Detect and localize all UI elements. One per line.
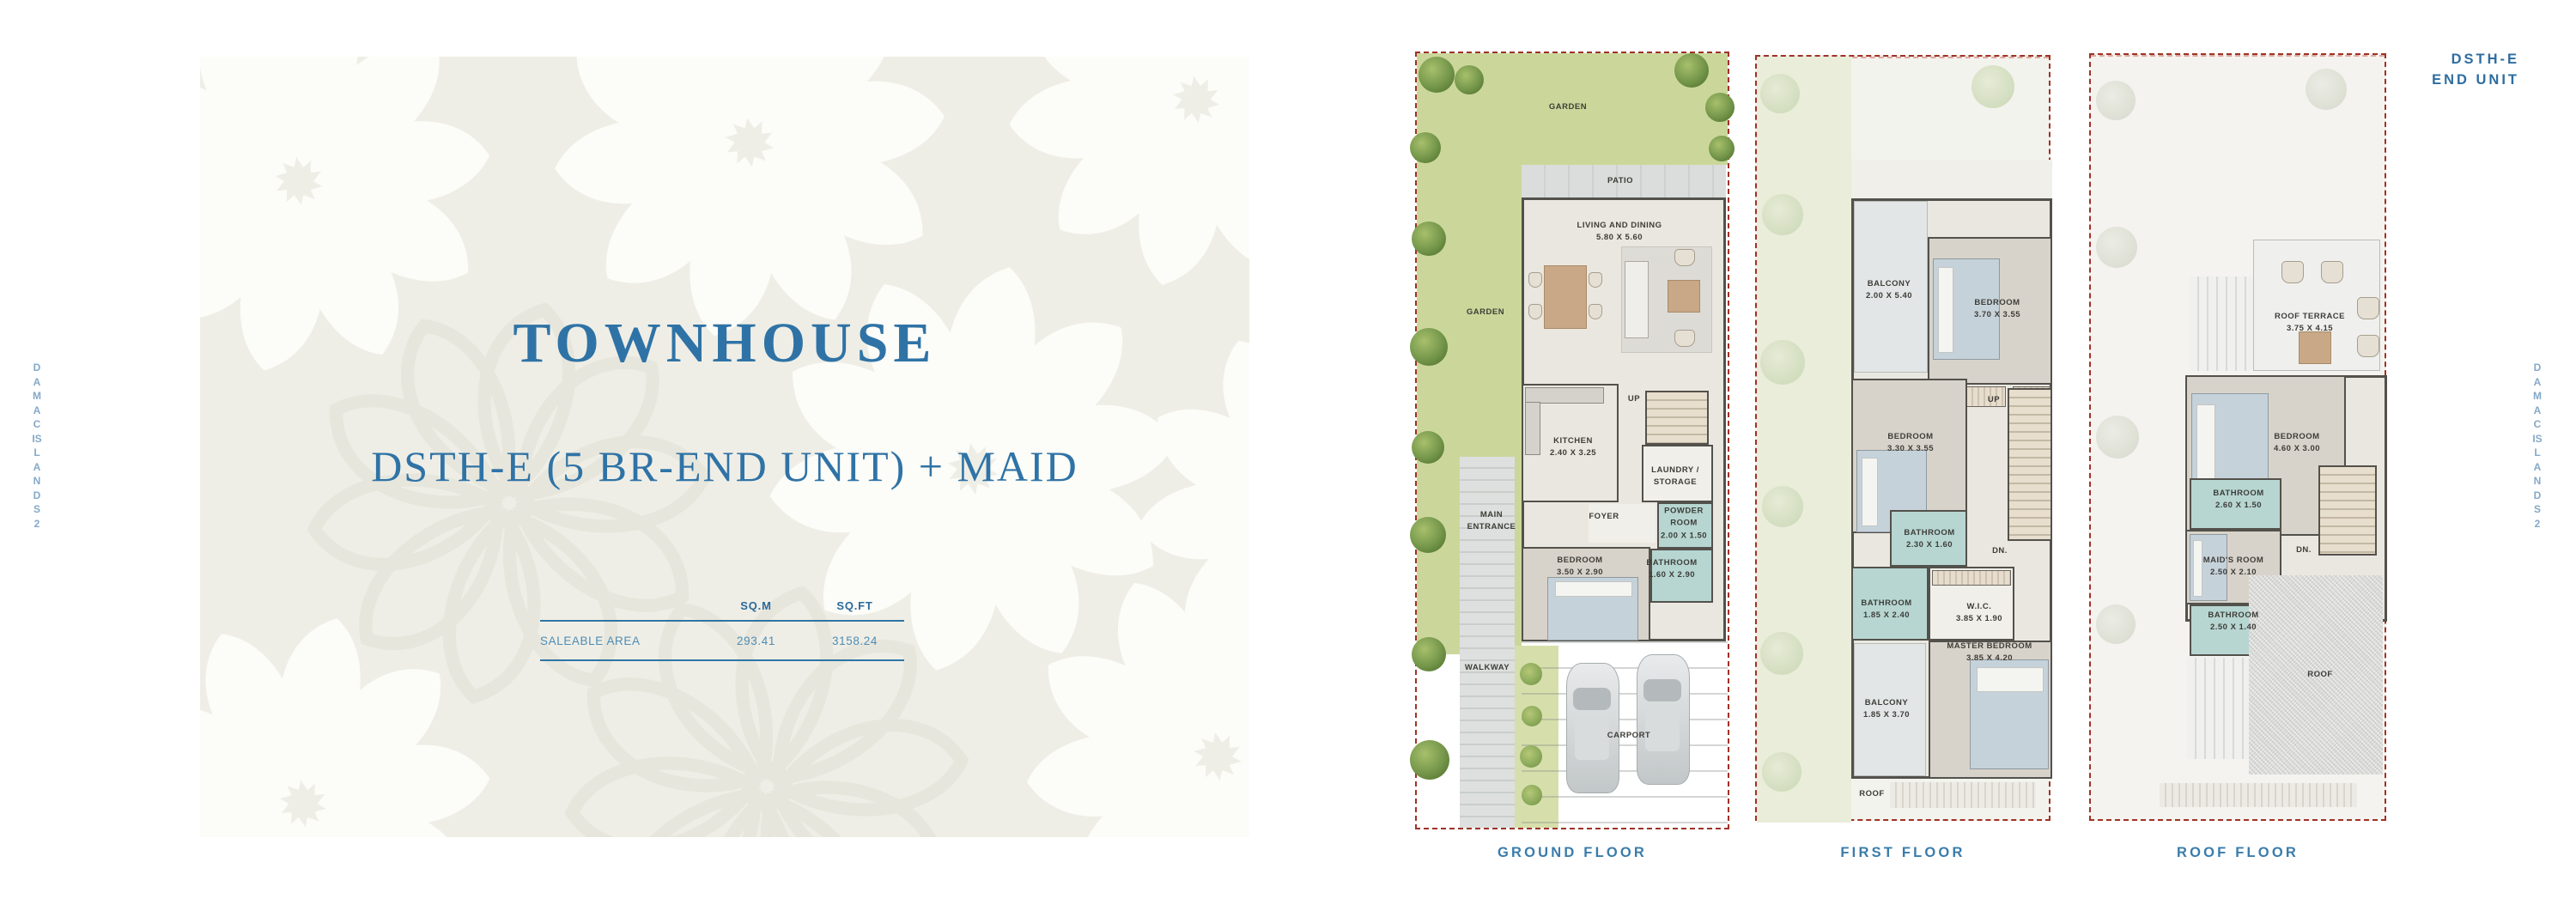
room-label: W.I.C. 3.85 X 1.90: [1956, 601, 2002, 626]
room-label: MAIN ENTRANCE: [1460, 509, 1523, 534]
room-label: POWDER ROOM 2.00 X 1.50: [1652, 506, 1716, 543]
area-table-row: SALEABLE AREA 293.41 3158.24: [540, 620, 904, 661]
room-label: CARPORT: [1607, 730, 1650, 742]
unit-tag-code: DSTH-E: [2432, 50, 2519, 70]
tree-icon: [1410, 328, 1448, 366]
tree-icon: [1410, 740, 1449, 780]
page-title: TOWNHOUSE: [200, 311, 1249, 376]
room-label: MAID'S ROOM 2.50 X 2.10: [2203, 555, 2264, 580]
chair-icon: [1528, 272, 1542, 288]
room-label: UP: [1988, 394, 2000, 406]
room-label: LAUNDRY / STORAGE: [1643, 465, 1707, 489]
chair-icon: [1589, 304, 1602, 319]
dining-table-icon: [1544, 265, 1587, 329]
room-label: BALCONY 2.00 X 5.40: [1866, 278, 1912, 303]
terrace-chair-icon: [2357, 297, 2379, 319]
kitchen-counter-icon: [1525, 402, 1540, 455]
room-label: BATHROOM 1.85 X 2.40: [1861, 598, 1911, 623]
bush-icon: [1522, 706, 1542, 726]
terrace-table-icon: [2299, 331, 2331, 364]
chair-icon: [1528, 304, 1542, 319]
roof-strip: [2160, 783, 2357, 807]
room-label: BATHROOM 1.60 X 2.90: [1646, 557, 1697, 582]
stairs: [2008, 388, 2052, 541]
bed-icon: [1547, 577, 1638, 641]
tree-icon: [1705, 93, 1735, 122]
room-label: PATIO: [1607, 175, 1633, 187]
room-label: GARDEN: [1467, 307, 1504, 319]
area-table-header: SQ.M SQ.FT: [540, 599, 904, 620]
room-label: BEDROOM 3.50 X 2.90: [1557, 555, 1603, 580]
side-rail-left: DAMAC ISLANDS 2: [31, 361, 43, 531]
armchair-icon: [1674, 249, 1695, 266]
room-label: DN.: [2296, 544, 2312, 556]
terrace-deck: [2190, 276, 2255, 371]
room-label: UP: [1628, 393, 1640, 405]
bush-icon: [1520, 663, 1542, 685]
coffee-table-icon: [1668, 280, 1700, 313]
faded-tree-icon: [2096, 227, 2137, 268]
tree-icon: [1412, 431, 1444, 464]
unit-tag: DSTH-E END UNIT: [2432, 50, 2519, 91]
floor-caption-first: FIRST FLOOR: [1755, 845, 2050, 861]
ground-floor-plan: GARDEN PATIO LIVING AND DINING 5.80 X 5.…: [1415, 52, 1729, 829]
area-table-col-sqm: SQ.M: [707, 599, 805, 612]
area-table: SQ.M SQ.FT SALEABLE AREA 293.41 3158.24: [540, 599, 904, 661]
area-sqft-value: 3158.24: [805, 635, 904, 647]
chair-icon: [1589, 272, 1602, 288]
faded-tree-icon: [1760, 74, 1800, 113]
stairs-down: [2318, 465, 2377, 556]
floor-caption-roof: ROOF FLOOR: [2089, 845, 2386, 861]
faded-tree-icon: [1760, 340, 1805, 385]
brochure-page: DAMAC ISLANDS 2 DAMAC ISLANDS 2 TOWNHOUS…: [0, 0, 2576, 911]
tree-icon: [1419, 57, 1455, 93]
car-icon: [1637, 654, 1690, 785]
room-label: BEDROOM 3.70 X 3.55: [1974, 297, 2020, 322]
wardrobe-icon: [1932, 570, 2011, 586]
bush-icon: [1522, 785, 1542, 805]
room-label: BEDROOM 3.30 X 3.55: [1887, 431, 1934, 456]
room-label: BALCONY 1.85 X 3.70: [1863, 697, 1910, 722]
faded-tree-icon: [2306, 69, 2347, 110]
room-label: BATHROOM 2.50 X 1.40: [2208, 610, 2258, 635]
armchair-icon: [1674, 330, 1695, 347]
room-label: LIVING AND DINING 5.80 X 5.60: [1577, 220, 1662, 245]
faded-tree-icon: [1760, 632, 1803, 675]
room-label: ROOF: [2307, 669, 2332, 681]
tree-icon: [1412, 222, 1446, 256]
page-subtitle: DSTH-E (5 BR-END UNIT) + MAID: [200, 441, 1249, 491]
plot-divider-line: [2091, 55, 2385, 57]
floor-caption-ground: GROUND FLOOR: [1415, 845, 1729, 861]
room-label: DN.: [1992, 545, 2008, 557]
tree-icon: [1410, 132, 1441, 163]
first-floor-plan: BALCONY 2.00 X 5.40 BEDROOM 3.70 X 3.55 …: [1755, 55, 2050, 821]
room-label: GARDEN: [1549, 101, 1587, 113]
terrace-chair-icon: [2321, 261, 2343, 283]
room-label: KITCHEN 2.40 X 3.25: [1550, 435, 1596, 460]
stairs-up: [1645, 391, 1709, 445]
roof-floor-plan: ROOF TERRACE 3.75 X 4.15 BEDROOM 4.60 X …: [2089, 53, 2386, 821]
faded-tree-icon: [1762, 486, 1803, 527]
area-row-label: SALEABLE AREA: [540, 635, 707, 647]
faded-tree-icon: [1762, 752, 1801, 792]
bed-icon: [1970, 659, 2049, 769]
faded-tree-icon: [1971, 65, 2014, 108]
tree-icon: [1709, 136, 1735, 161]
pergola-strip: [2187, 658, 2249, 759]
unit-tag-type: END UNIT: [2432, 70, 2519, 91]
room-label: BEDROOM 4.60 X 3.00: [2274, 431, 2320, 456]
tree-icon: [1412, 637, 1446, 671]
terrace-chair-icon: [2281, 261, 2304, 283]
roof-ledge: [1851, 160, 2052, 198]
roof-strip: [1890, 782, 2036, 808]
terrace-chair-icon: [2357, 335, 2379, 357]
sofa-icon: [1625, 261, 1649, 338]
side-rail-right: DAMAC ISLANDS 2: [2531, 361, 2543, 531]
room-label: BATHROOM 2.30 X 1.60: [1904, 527, 1954, 552]
plot-garden-faded: [1757, 57, 1851, 823]
faded-tree-icon: [2096, 81, 2136, 120]
foyer-area: [1589, 504, 1656, 543]
bush-icon: [1520, 745, 1542, 768]
tree-icon: [1455, 65, 1484, 94]
flower-pattern-icon: [1016, 555, 1249, 837]
room-label: BATHROOM 2.60 X 1.50: [2213, 488, 2263, 513]
area-table-header-spacer: [540, 599, 707, 612]
title-panel: TOWNHOUSE DSTH-E (5 BR-END UNIT) + MAID …: [200, 57, 1249, 837]
room-label: ROOF: [1859, 788, 1884, 800]
area-sqm-value: 293.41: [707, 635, 805, 647]
faded-tree-icon: [2096, 604, 2136, 644]
faded-tree-icon: [1762, 194, 1803, 235]
tree-icon: [1410, 517, 1446, 553]
room-label: FOYER: [1589, 511, 1619, 523]
car-icon: [1566, 663, 1619, 793]
room-label: MASTER BEDROOM 3.85 X 4.20: [1947, 641, 2032, 665]
flower-pattern-icon: [200, 606, 501, 837]
faded-tree-icon: [2096, 416, 2139, 459]
room-label: ROOF TERRACE 3.75 X 4.15: [2275, 311, 2345, 336]
room-label: WALKWAY: [1465, 662, 1510, 674]
tree-icon: [1674, 53, 1709, 88]
area-table-col-sqft: SQ.FT: [805, 599, 904, 612]
